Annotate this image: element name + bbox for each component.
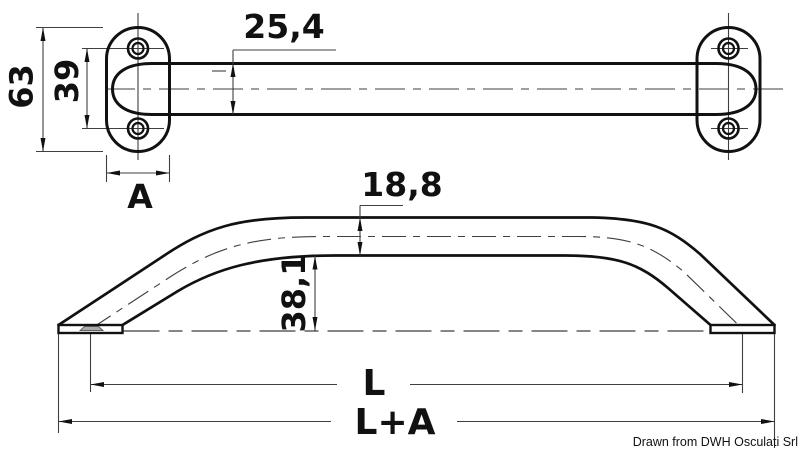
dim-A-arrow-left-icon bbox=[107, 171, 121, 176]
dim-254-arrow-up-icon bbox=[231, 64, 236, 78]
dim-63-arrow-down-icon bbox=[41, 138, 46, 152]
dim-39-arrow-down-icon bbox=[85, 115, 90, 129]
dim-tube-diameter: 25,4 bbox=[212, 7, 336, 115]
credit-text: Drawn from DWH Osculati Srl bbox=[633, 435, 798, 449]
dim-188-label: 18,8 bbox=[361, 165, 442, 204]
left-foot-weld-detail bbox=[80, 327, 103, 331]
dim-LA-label: L+A bbox=[355, 402, 436, 443]
drawing-canvas: 63 39 A 25,4 bbox=[0, 0, 800, 449]
side-view: 18,8 38,1 L L+A bbox=[59, 165, 775, 448]
right-foot-plate bbox=[711, 325, 775, 333]
dim-tube-height: 18,8 bbox=[358, 165, 443, 256]
dim-plate-width: A bbox=[107, 155, 170, 216]
dim-39-label: 39 bbox=[48, 59, 86, 104]
dim-LA-arrow-right-icon bbox=[761, 419, 775, 424]
technical-drawing-handrail: 63 39 A 25,4 bbox=[0, 0, 800, 449]
dim-381-label: 38,1 bbox=[275, 254, 313, 333]
dim-254-arrow-down-icon bbox=[231, 101, 236, 115]
dim-length-centers: L bbox=[91, 334, 743, 404]
dim-63-arrow-up-icon bbox=[41, 28, 46, 42]
dim-hole-spacing: 39 bbox=[48, 49, 89, 129]
tube-axis-centerline-side bbox=[91, 237, 743, 330]
dim-A-arrow-right-icon bbox=[156, 171, 170, 176]
dim-grip-clearance: 38,1 bbox=[275, 254, 317, 333]
dim-381-arrow-down-icon bbox=[313, 317, 318, 331]
tube-outer-edge bbox=[59, 218, 775, 326]
dim-L-arrow-right-icon bbox=[729, 382, 743, 387]
dim-length-overall: L+A bbox=[59, 334, 775, 448]
dim-381-arrow-up-icon bbox=[313, 256, 318, 270]
dim-63-label: 63 bbox=[3, 64, 41, 109]
dim-LA-arrow-left-icon bbox=[59, 419, 73, 424]
dim-A-label: A bbox=[127, 177, 153, 216]
dim-L-label: L bbox=[363, 363, 386, 404]
tube-inner-edge bbox=[123, 256, 711, 326]
dim-188-arrow-down-icon bbox=[358, 242, 363, 256]
dim-188-arrow-up-icon bbox=[358, 218, 363, 232]
dim-254-label: 25,4 bbox=[243, 7, 324, 46]
dim-L-arrow-left-icon bbox=[91, 382, 105, 387]
